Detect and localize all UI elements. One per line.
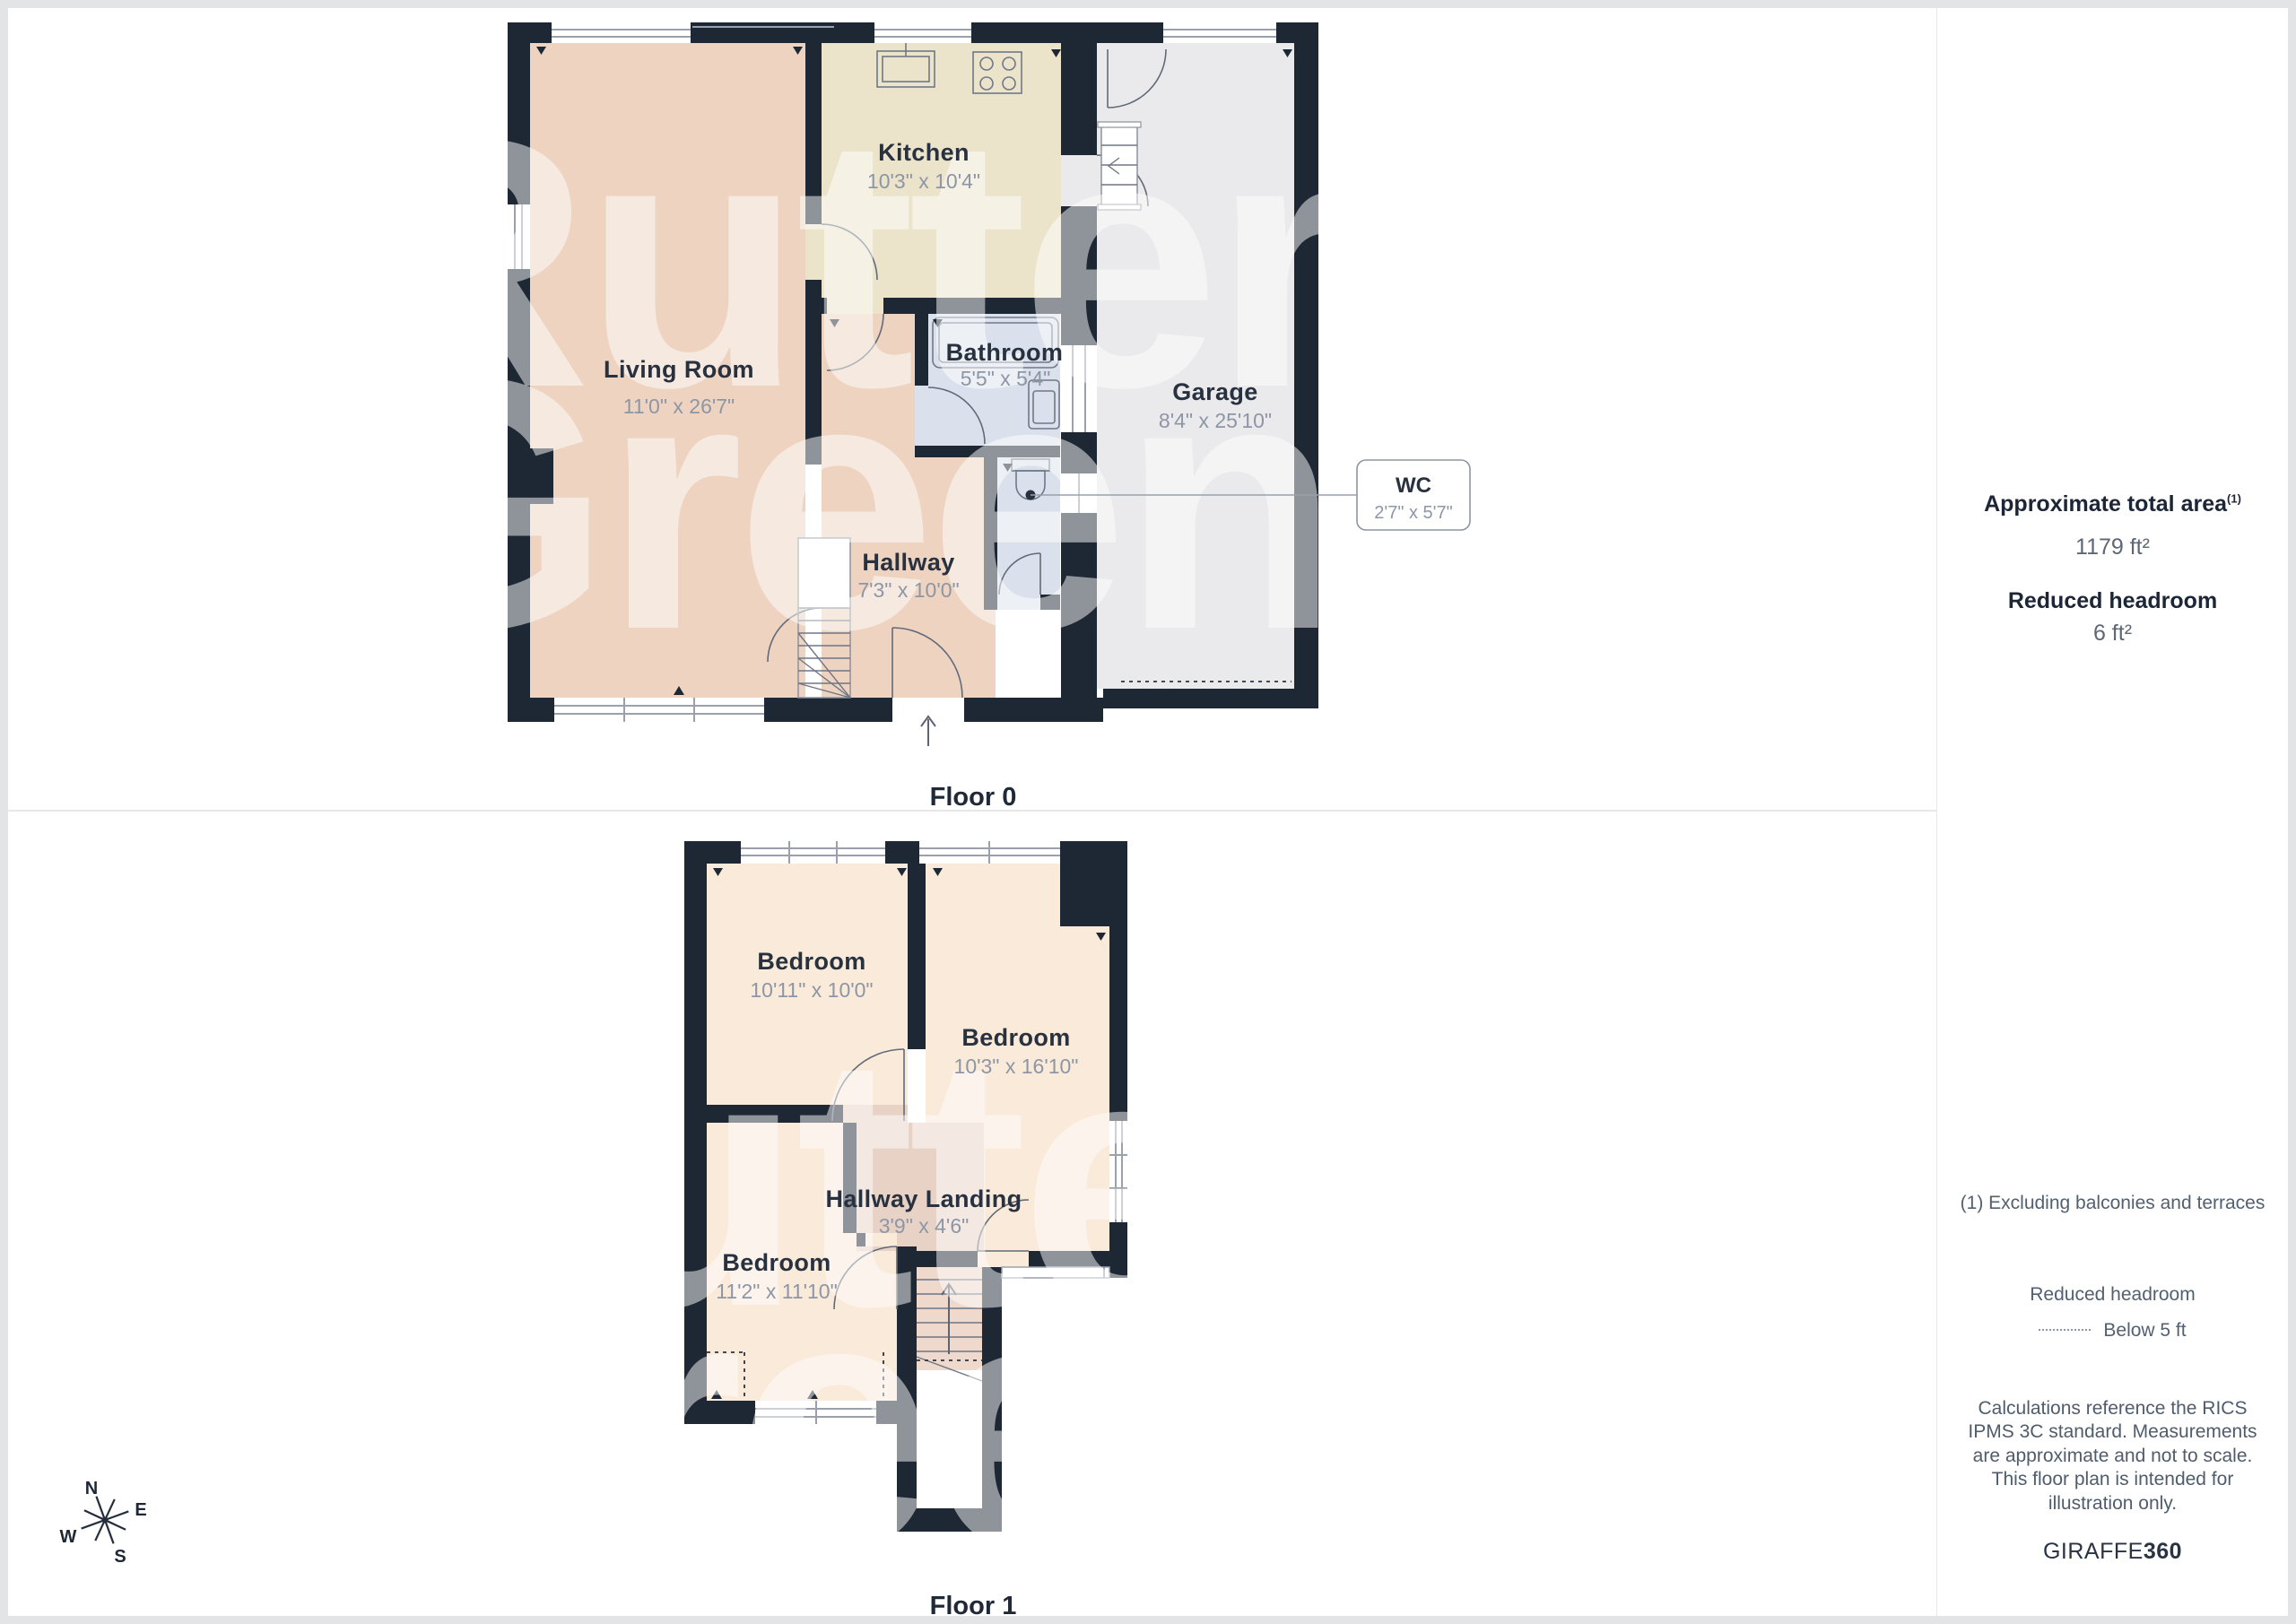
bedroom1-label: Bedroom [757,948,865,975]
living-room-label: Living Room [604,356,754,383]
wc-label: WC [1396,473,1431,498]
total-area-value: 1179 ft² [1937,534,2288,560]
legend-item-label: Below 5 ft [2103,1320,2186,1341]
compass-west-label: W [60,1527,77,1547]
reduced-headroom-value: 6 ft² [1937,621,2288,647]
total-area-heading-text: Approximate total area [1984,491,2227,517]
bathroom-dims: 5'5" x 5'4" [961,367,1051,390]
giraffe360-logo: GIRAFFE360 [1937,1539,2288,1565]
bedroom2-dims: 10'3" x 16'10" [954,1055,1079,1078]
garage-door [1163,22,1276,43]
watermark-line2: Green [332,303,1333,704]
brand-suffix: 360 [2144,1539,2182,1564]
panel-divider-horizontal [7,810,1936,812]
legend-title: Reduced headroom [1937,1284,2288,1306]
floor0-plan: Rutter Green WC 2'7" x 5'7" Living Room … [7,7,1936,810]
bathroom-label: Bathroom [946,339,1064,366]
hallway-label: Hallway [862,549,954,576]
bedroom3-label: Bedroom [722,1249,831,1276]
floor0-title: Floor 0 [930,783,1017,810]
garage-label: Garage [1172,378,1257,405]
footnote-marker: (1) [2227,492,2241,506]
dashed-line-sample [2039,1329,2091,1333]
hallway-dims: 7'3" x 10'0" [857,578,959,602]
disclaimer-text: Calculations reference the RICS IPMS 3C … [1964,1397,2261,1515]
compass-north-label: N [85,1479,98,1498]
area-footnote: (1) Excluding balconies and terraces [1937,1193,2288,1214]
floor1-plan: Rutter Green Bedroom 10'11" x 10'0" Bedr… [7,811,1936,1617]
landing-dims: 3'9" x 4'6" [879,1214,970,1238]
compass-east-label: E [135,1500,146,1520]
living-room-dims: 11'0" x 26'7" [623,395,735,418]
bedroom3-dims: 11'2" x 11'10" [716,1280,838,1303]
kitchen-label: Kitchen [878,139,970,166]
brand-name: GIRAFFE [2043,1539,2144,1564]
bedroom2-label: Bedroom [961,1024,1070,1051]
kitchen-dims: 10'3" x 10'4" [867,169,980,193]
garage-dims: 8'4" x 25'10" [1159,409,1272,432]
floor1-title: Floor 1 [930,1592,1017,1617]
info-sidebar: Approximate total area(1) 1179 ft² Reduc… [1937,7,2288,1617]
total-area-heading: Approximate total area(1) [1937,491,2288,517]
floorplan-page: Rutter Green WC 2'7" x 5'7" Living Room … [0,0,2296,1624]
landing-label: Hallway Landing [825,1185,1022,1212]
watermark-floor1: Rutter Green [332,980,1347,1617]
compass-rose: N E W S [60,1479,147,1567]
bedroom1-dims: 10'11" x 10'0" [750,978,873,1002]
compass-south-label: S [114,1547,126,1567]
wc-dims: 2'7" x 5'7" [1374,503,1452,523]
reduced-headroom-heading: Reduced headroom [1937,588,2288,614]
legend-row: Below 5 ft [1937,1320,2288,1342]
